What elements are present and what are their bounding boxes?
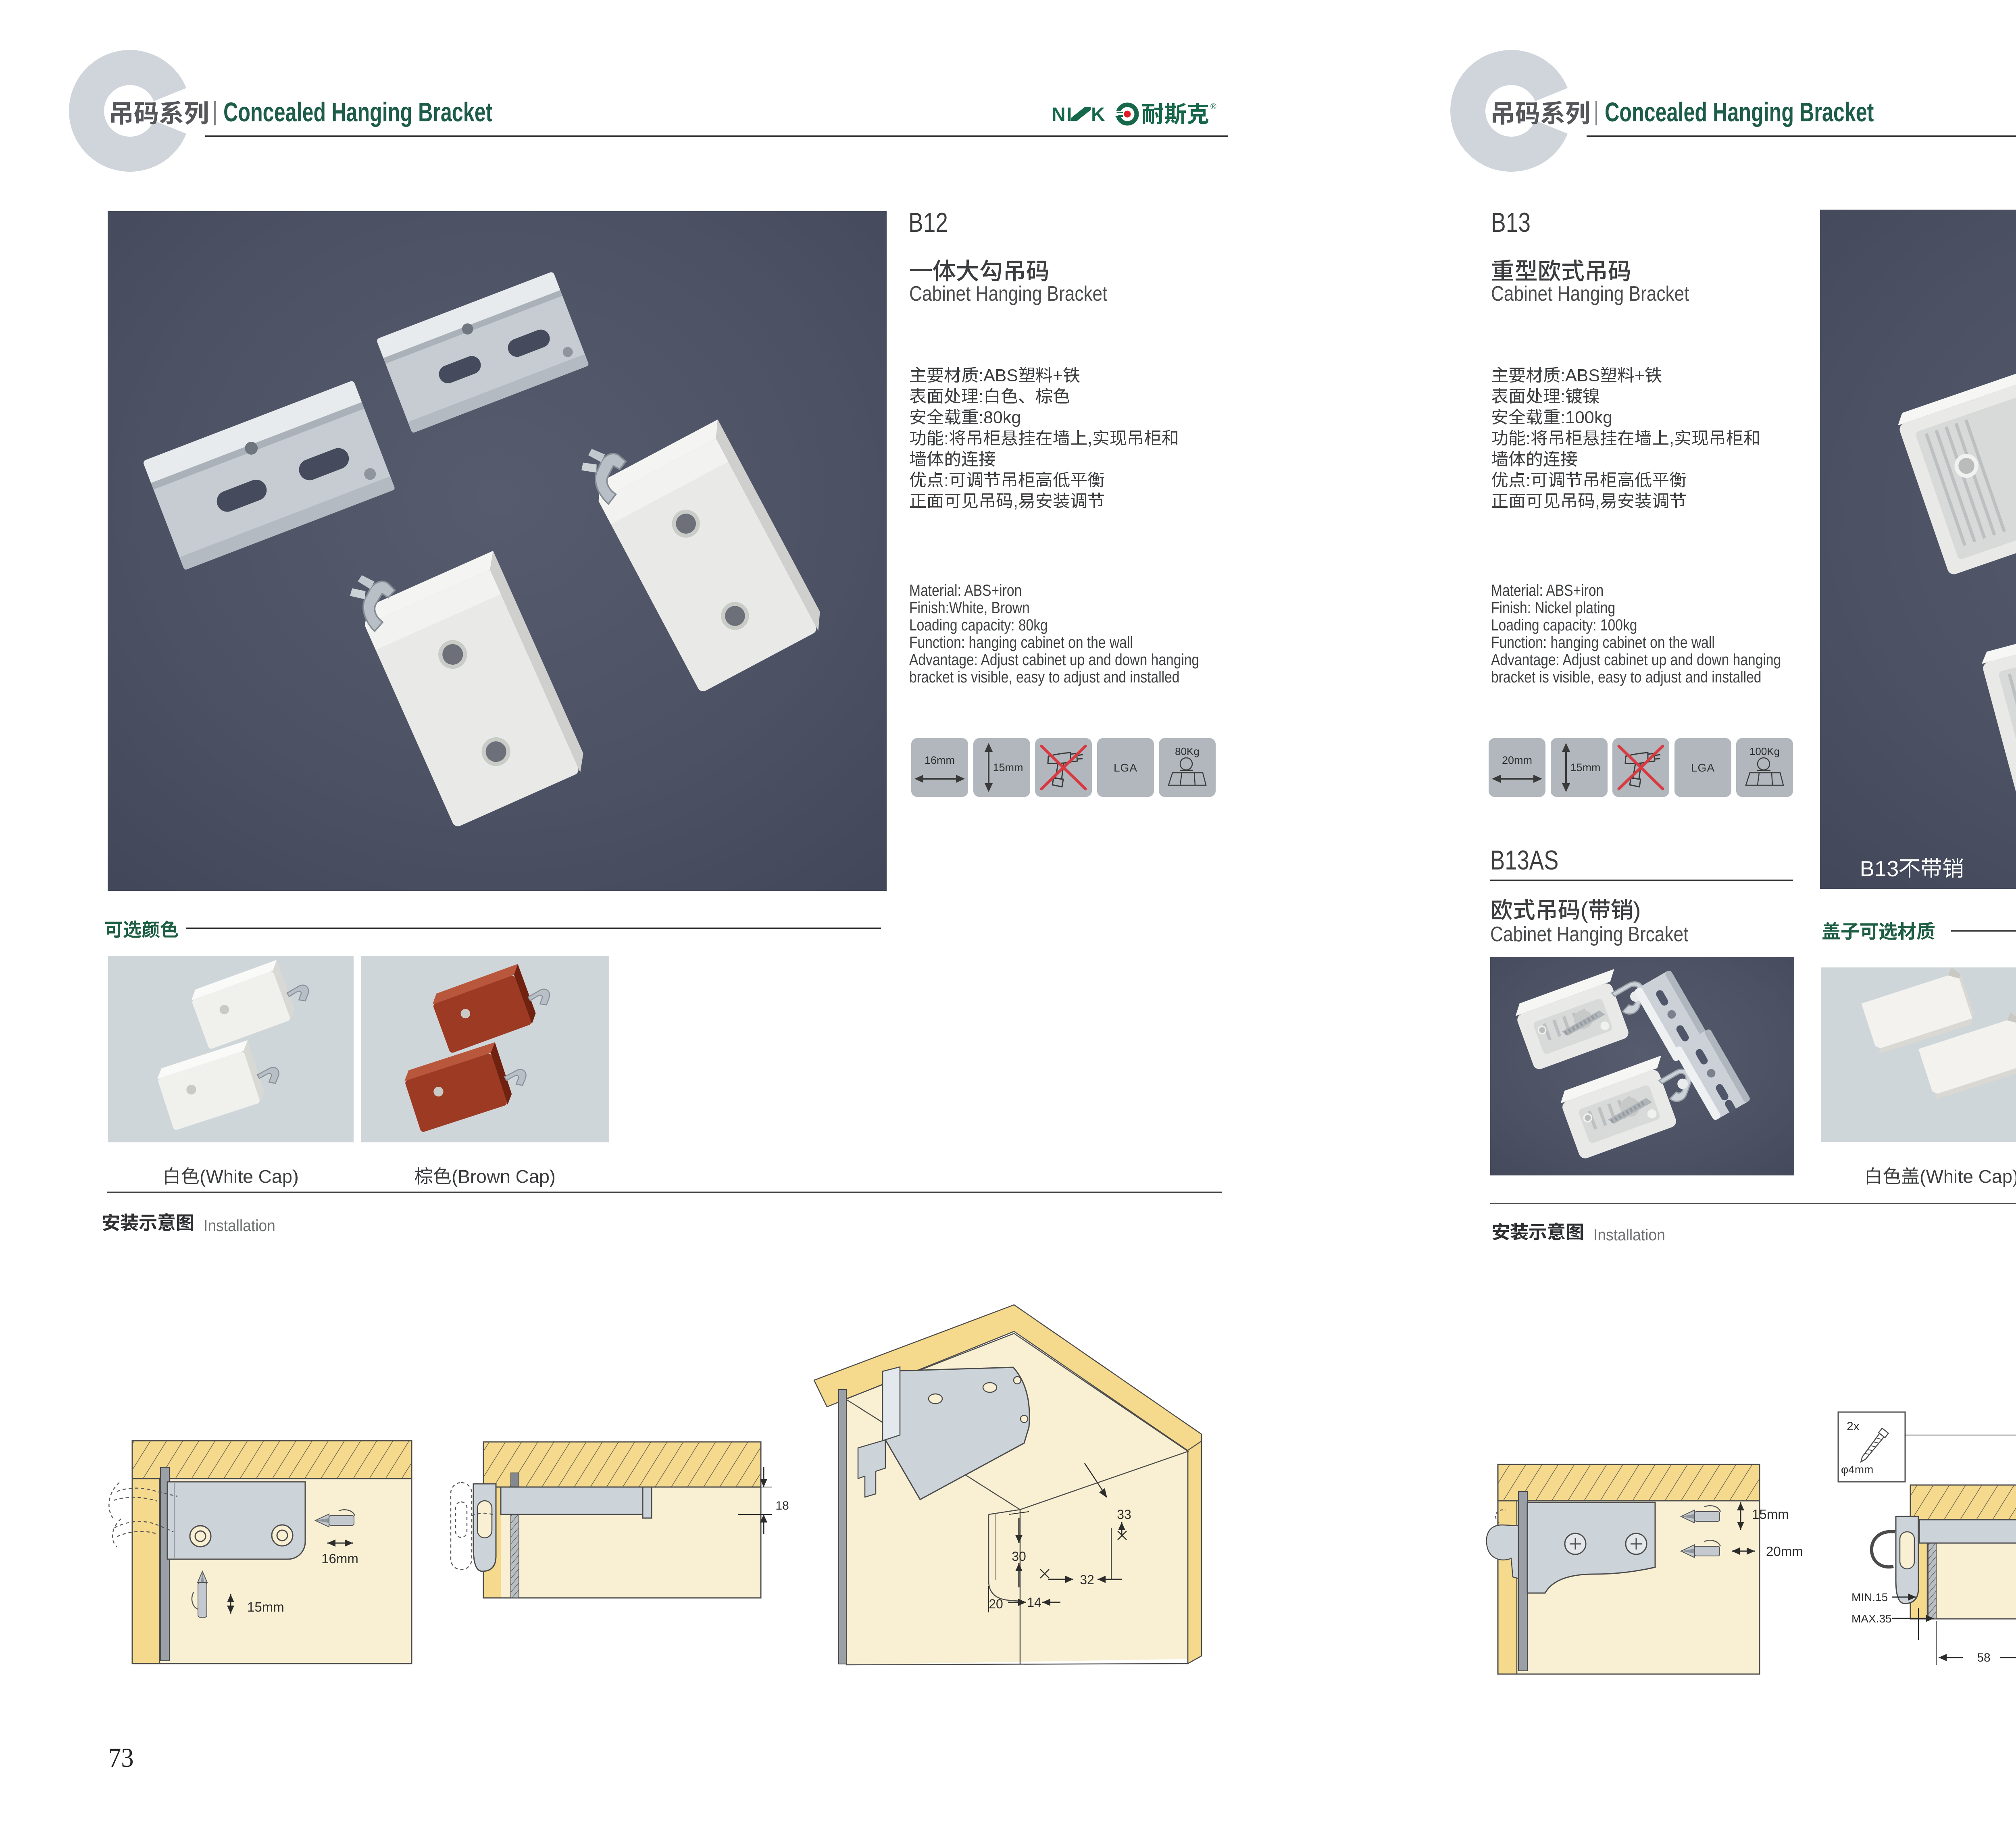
- svg-text:2x: 2x: [1847, 1420, 1860, 1433]
- svg-text:20mm: 20mm: [1766, 1544, 1803, 1559]
- svg-text:NI: NI: [1052, 104, 1073, 125]
- svg-text:16mm: 16mm: [925, 754, 955, 766]
- svg-text:MAX.35: MAX.35: [1851, 1612, 1892, 1625]
- svg-text:20: 20: [989, 1597, 1003, 1611]
- svg-text:80Kg: 80Kg: [1175, 745, 1200, 757]
- svg-text:LGA: LGA: [1113, 761, 1137, 774]
- svg-text:®: ®: [1210, 102, 1216, 111]
- svg-text:14: 14: [1027, 1595, 1041, 1610]
- svg-text:58: 58: [1977, 1651, 1990, 1664]
- svg-text:LGA: LGA: [1691, 761, 1714, 774]
- svg-text:100Kg: 100Kg: [1749, 745, 1780, 757]
- svg-text:15mm: 15mm: [1570, 761, 1600, 774]
- svg-text:15mm: 15mm: [1752, 1507, 1789, 1522]
- svg-text:K: K: [1091, 104, 1105, 125]
- svg-text:15mm: 15mm: [993, 761, 1023, 774]
- svg-text:φ4mm: φ4mm: [1841, 1463, 1873, 1476]
- svg-text:16mm: 16mm: [321, 1551, 358, 1566]
- svg-text:30: 30: [1012, 1549, 1026, 1564]
- svg-text:32: 32: [1080, 1572, 1094, 1587]
- svg-text:18: 18: [775, 1499, 789, 1512]
- svg-text:33: 33: [1117, 1507, 1131, 1522]
- svg-text:MIN.15: MIN.15: [1851, 1591, 1888, 1604]
- svg-text:15mm: 15mm: [247, 1599, 284, 1614]
- svg-text:20mm: 20mm: [1502, 754, 1532, 766]
